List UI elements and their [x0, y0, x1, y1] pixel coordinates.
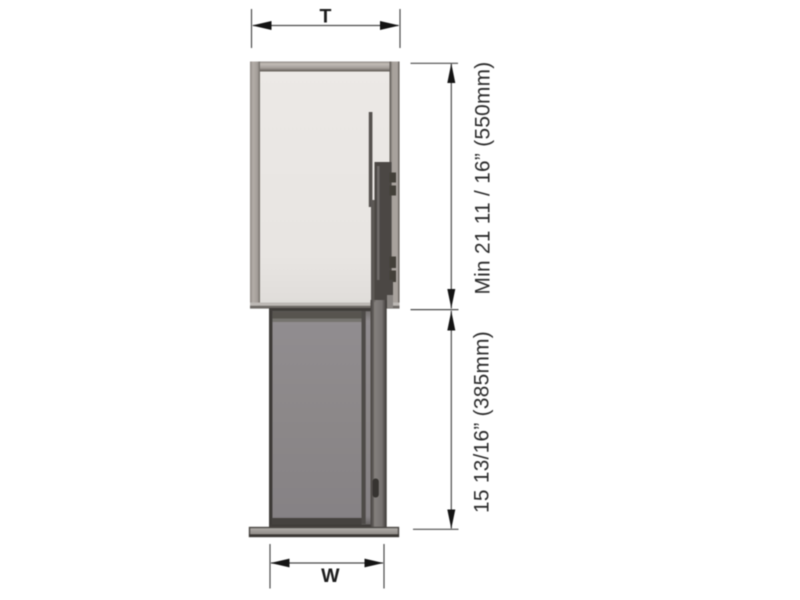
svg-text:Min 21 11 / 16” (550mm): Min 21 11 / 16” (550mm)	[471, 61, 494, 294]
svg-text:T: T	[320, 6, 332, 28]
svg-text:15 13/16” (385mm): 15 13/16” (385mm)	[471, 331, 494, 513]
svg-text:W: W	[321, 565, 340, 587]
